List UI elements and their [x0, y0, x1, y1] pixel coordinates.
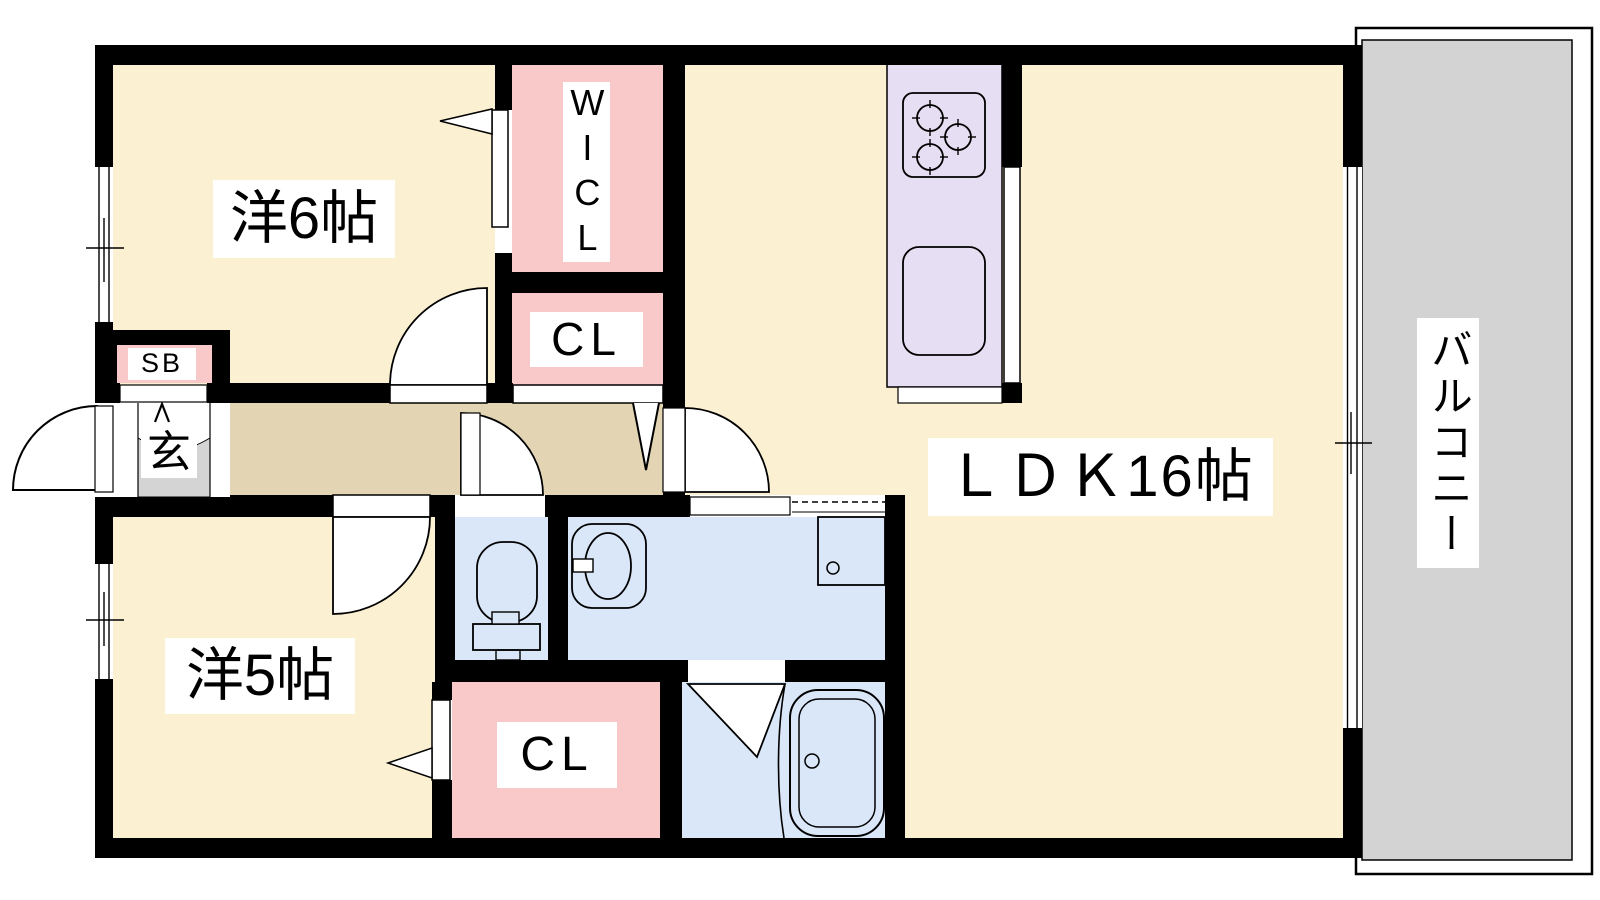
wall-closet-lower-left [432, 780, 452, 838]
door-swing-entrance [13, 406, 97, 490]
wall-water-mid [435, 660, 688, 682]
wall-right [1343, 728, 1362, 838]
wall-filler [207, 383, 230, 403]
wall-western5-toilet [435, 517, 455, 660]
wall-wicl-left [495, 63, 512, 110]
wall-hallway-bottom [545, 495, 690, 517]
door-leaf-western5 [333, 495, 430, 517]
room-label-closet-lower: CL [497, 722, 617, 788]
wall-wicl-left [495, 253, 512, 403]
room-label-shoe-box: SB [128, 348, 196, 380]
door-slider-washroom [690, 497, 790, 515]
wall-closet-right [663, 63, 685, 408]
washroom-floor [568, 517, 885, 660]
floor-plan: 洋6帖 WICL CL ＬＤＫ16帖 バルコニー 洋5帖 CL SB 玄 [0, 0, 1600, 900]
wall-kitchen-stub [1002, 63, 1022, 167]
room-label-balcony: バルコニー [1417, 318, 1479, 568]
wall-left [95, 679, 113, 858]
wall-left [95, 45, 113, 167]
wall-closet-bath [660, 682, 682, 838]
door-gap-bathroom [688, 660, 785, 682]
door-leaf-entrance [95, 406, 113, 492]
wall-right [1343, 65, 1362, 167]
toilet-flush-icon [492, 612, 519, 624]
wall-hallway-bottom [230, 495, 333, 517]
door-leaf-wicl [492, 110, 508, 227]
door-gap-toilet [455, 495, 545, 517]
room-label-western5: 洋5帖 [165, 638, 355, 714]
wall-top [95, 45, 1362, 65]
wall-hallway-top [230, 383, 390, 403]
wall-toilet-washroom [548, 517, 568, 660]
door-leaf-closet-lower [432, 700, 450, 780]
kitchen-counter-end [898, 387, 1002, 403]
shoe-box-front [120, 385, 207, 402]
door-leaf-toilet [461, 413, 480, 495]
wall-shoebox-top [95, 330, 230, 345]
room-label-wicl: WICL [563, 82, 610, 262]
wall-closet-lower-left [432, 682, 452, 700]
door-track-closet-upper [513, 385, 663, 403]
wall-hallway-bottom [885, 495, 905, 517]
wall-filler [113, 383, 120, 403]
door-leaf-ldk [663, 408, 685, 492]
wall-water-right [885, 517, 905, 838]
wall-wicl-closet-divider [512, 272, 663, 293]
wall-kitchen-block [1002, 383, 1022, 403]
room-label-entrance: 玄 [141, 428, 197, 478]
room-label-ldk: ＬＤＫ16帖 [928, 438, 1273, 516]
wall-hallway-bottom [430, 495, 455, 517]
room-label-western6: 洋6帖 [213, 180, 395, 258]
floor-plan-drawing [0, 0, 1600, 900]
faucet-icon [573, 559, 593, 572]
hallway-floor [230, 403, 663, 495]
door-leaf-western6 [390, 385, 487, 403]
wall-bottom [95, 838, 1362, 858]
toilet-room-floor [455, 517, 548, 660]
wall-entrance-bottom [95, 497, 230, 517]
room-label-closet-upper: CL [530, 312, 643, 367]
kitchen-counter-side [1004, 167, 1020, 383]
window-balcony-sliding [1343, 167, 1362, 728]
